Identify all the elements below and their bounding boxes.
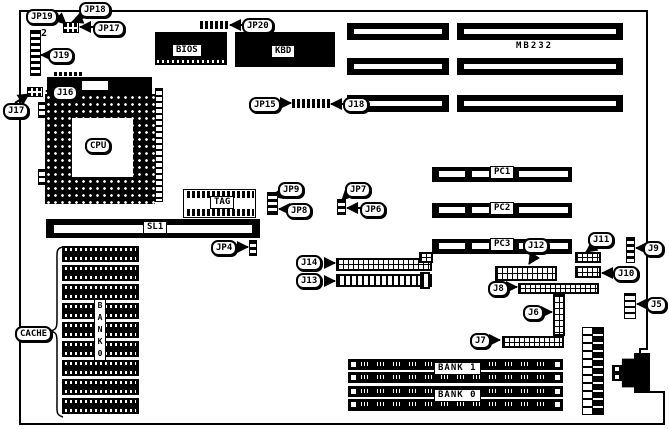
board-model-text: MB232 bbox=[516, 41, 553, 51]
callout-j6: J6 bbox=[523, 305, 544, 321]
isa-slot-2-left bbox=[347, 58, 449, 75]
bank1-label: BANK 1 bbox=[434, 362, 481, 375]
vletter: B bbox=[95, 300, 105, 312]
cache-chip-3 bbox=[62, 284, 139, 300]
callout-jp7: JP7 bbox=[345, 182, 371, 198]
simm-clip bbox=[554, 388, 561, 395]
power-connector-pins-right bbox=[593, 328, 603, 414]
pin-header-j9 bbox=[626, 237, 635, 263]
callout-jp20: JP20 bbox=[242, 18, 274, 34]
tag-label: TAG bbox=[210, 196, 234, 209]
callout-j9: J9 bbox=[643, 241, 664, 257]
callout-jp17: JP17 bbox=[93, 21, 125, 37]
isa-slot-opening bbox=[354, 29, 442, 34]
pin-header-jp20 bbox=[200, 21, 229, 29]
pci-slot-opening bbox=[439, 207, 465, 213]
isa-slot-opening bbox=[464, 64, 616, 69]
vletter: 0 bbox=[95, 348, 105, 360]
vletter: A bbox=[95, 312, 105, 324]
pc2-label: PC2 bbox=[490, 202, 514, 215]
pci-slot-opening bbox=[519, 207, 568, 213]
simm-clip bbox=[350, 388, 357, 395]
cpu-label: CPU bbox=[85, 138, 111, 154]
j2-marker-text: 2 bbox=[41, 28, 47, 39]
callout-j8: J8 bbox=[488, 281, 509, 297]
cpu-socket-tab-upper bbox=[38, 102, 46, 118]
simm-clip bbox=[350, 374, 357, 381]
cache-chip-9 bbox=[62, 398, 139, 414]
cpu-socket-tab-lower bbox=[38, 169, 46, 185]
callout-jp9: JP9 bbox=[278, 182, 304, 198]
callout-j12: J12 bbox=[523, 238, 549, 254]
pci-slot-opening bbox=[472, 171, 489, 177]
pc3-label: PC3 bbox=[490, 238, 514, 251]
small-header-b bbox=[420, 272, 430, 289]
bank0-label: BANK 0 bbox=[434, 389, 481, 402]
isa-slot-1-left bbox=[347, 23, 449, 40]
pci-slot-opening bbox=[439, 171, 465, 177]
tag-chip-pins-bottom bbox=[185, 209, 254, 216]
motherboard-diagram: JP19 JP18 JP17 2 J19 J17 J16 CPU BIOS JP… bbox=[0, 0, 669, 429]
bios-label: BIOS bbox=[172, 44, 202, 57]
simm-clip bbox=[554, 361, 561, 368]
isa-slot-opening bbox=[354, 64, 442, 69]
isa-slot-opening bbox=[464, 29, 616, 34]
callout-jp8: JP8 bbox=[286, 203, 312, 219]
cache-chip-2 bbox=[62, 265, 139, 281]
cache-chip-7 bbox=[62, 360, 139, 376]
jumper-block-jp17-jp19 bbox=[63, 22, 79, 33]
cpu-socket-lever bbox=[155, 88, 163, 202]
pci-slot-opening bbox=[519, 171, 568, 177]
pin-header-j13 bbox=[336, 274, 432, 287]
callout-jp6: JP6 bbox=[360, 202, 386, 218]
din-notch bbox=[615, 375, 619, 379]
jumper-block-j17 bbox=[27, 87, 43, 97]
pci-slot-opening bbox=[472, 207, 489, 213]
callout-jp18: JP18 bbox=[79, 2, 111, 18]
callout-jp15: JP15 bbox=[249, 97, 281, 113]
pin-header-j11 bbox=[575, 252, 601, 263]
bios-chip-pins bbox=[157, 60, 225, 63]
j16-connector-slot bbox=[82, 81, 108, 90]
small-header-a bbox=[419, 252, 433, 263]
callout-j11: J11 bbox=[588, 232, 614, 248]
vletter: K bbox=[95, 336, 105, 348]
callout-j16: J16 bbox=[52, 85, 78, 101]
j16-pin-ticks bbox=[52, 72, 82, 76]
simm-clip bbox=[554, 374, 561, 381]
simm-clip bbox=[554, 401, 561, 408]
jumper-block-jp8-jp9 bbox=[267, 192, 278, 215]
cache-chip-8 bbox=[62, 379, 139, 395]
power-connector bbox=[582, 327, 604, 415]
pin-header-j14 bbox=[336, 258, 432, 271]
pin-header-j7 bbox=[502, 336, 564, 348]
sl1-label: SL1 bbox=[143, 221, 167, 234]
kbd-label: KBD bbox=[271, 45, 295, 58]
isa-slot-1-right bbox=[457, 23, 623, 40]
cache-bank0-vertical-label: B A N K 0 bbox=[94, 299, 106, 361]
pin-header-j8 bbox=[518, 283, 599, 294]
callout-cache: CACHE bbox=[15, 326, 52, 342]
pc1-label: PC1 bbox=[490, 166, 514, 179]
isa-slot-opening bbox=[464, 101, 616, 106]
callout-j19: J19 bbox=[48, 48, 74, 64]
pci-slot-opening bbox=[439, 243, 465, 249]
isa-slot-3-right bbox=[457, 95, 623, 112]
jumper-block-jp6-jp7 bbox=[337, 199, 346, 215]
simm-clip bbox=[350, 401, 357, 408]
callout-j17: J17 bbox=[3, 103, 29, 119]
cache-chip-1 bbox=[62, 246, 139, 262]
callout-j18: J18 bbox=[343, 97, 369, 113]
pin-header-jp15 bbox=[292, 99, 330, 108]
vletter: N bbox=[95, 324, 105, 336]
callout-jp4: JP4 bbox=[211, 240, 237, 256]
callout-j13: J13 bbox=[296, 273, 322, 289]
pci-slot-opening bbox=[472, 243, 489, 249]
pin-header-j2 bbox=[30, 30, 41, 76]
callout-j5: J5 bbox=[646, 297, 667, 313]
pin-header-j10 bbox=[575, 266, 601, 278]
jumper-block-jp4 bbox=[249, 240, 257, 256]
pin-header-j5 bbox=[624, 293, 636, 319]
pin-header-j6 bbox=[553, 294, 565, 336]
callout-j7: J7 bbox=[470, 333, 491, 349]
callout-j14: J14 bbox=[296, 255, 322, 271]
callout-jp19: JP19 bbox=[26, 9, 58, 25]
callout-j10: J10 bbox=[613, 266, 639, 282]
din-notch bbox=[615, 367, 619, 371]
power-connector-pins-left bbox=[583, 328, 593, 414]
simm-clip bbox=[350, 361, 357, 368]
isa-slot-2-right bbox=[457, 58, 623, 75]
pin-header-j12 bbox=[495, 266, 557, 281]
